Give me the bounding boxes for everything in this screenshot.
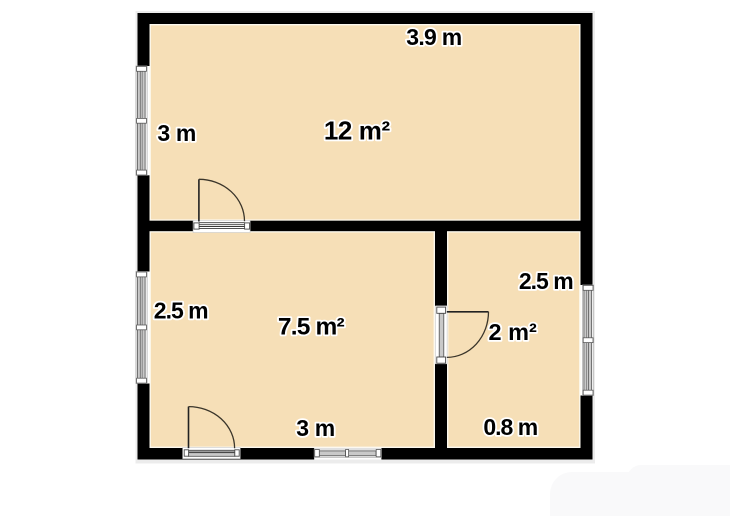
svg-text:2.5 m: 2.5 m [154, 298, 208, 324]
svg-text:3 m: 3 m [157, 120, 196, 146]
svg-text:2.5 m: 2.5 m [519, 268, 573, 294]
svg-text:3 m: 3 m [296, 415, 335, 441]
svg-text:2 m²: 2 m² [489, 319, 537, 345]
svg-text:7.5 m²: 7.5 m² [278, 314, 345, 341]
svg-text:0.8 m: 0.8 m [483, 414, 537, 440]
svg-text:3.9 m: 3.9 m [406, 24, 462, 50]
svg-text:12 m²: 12 m² [324, 116, 391, 146]
